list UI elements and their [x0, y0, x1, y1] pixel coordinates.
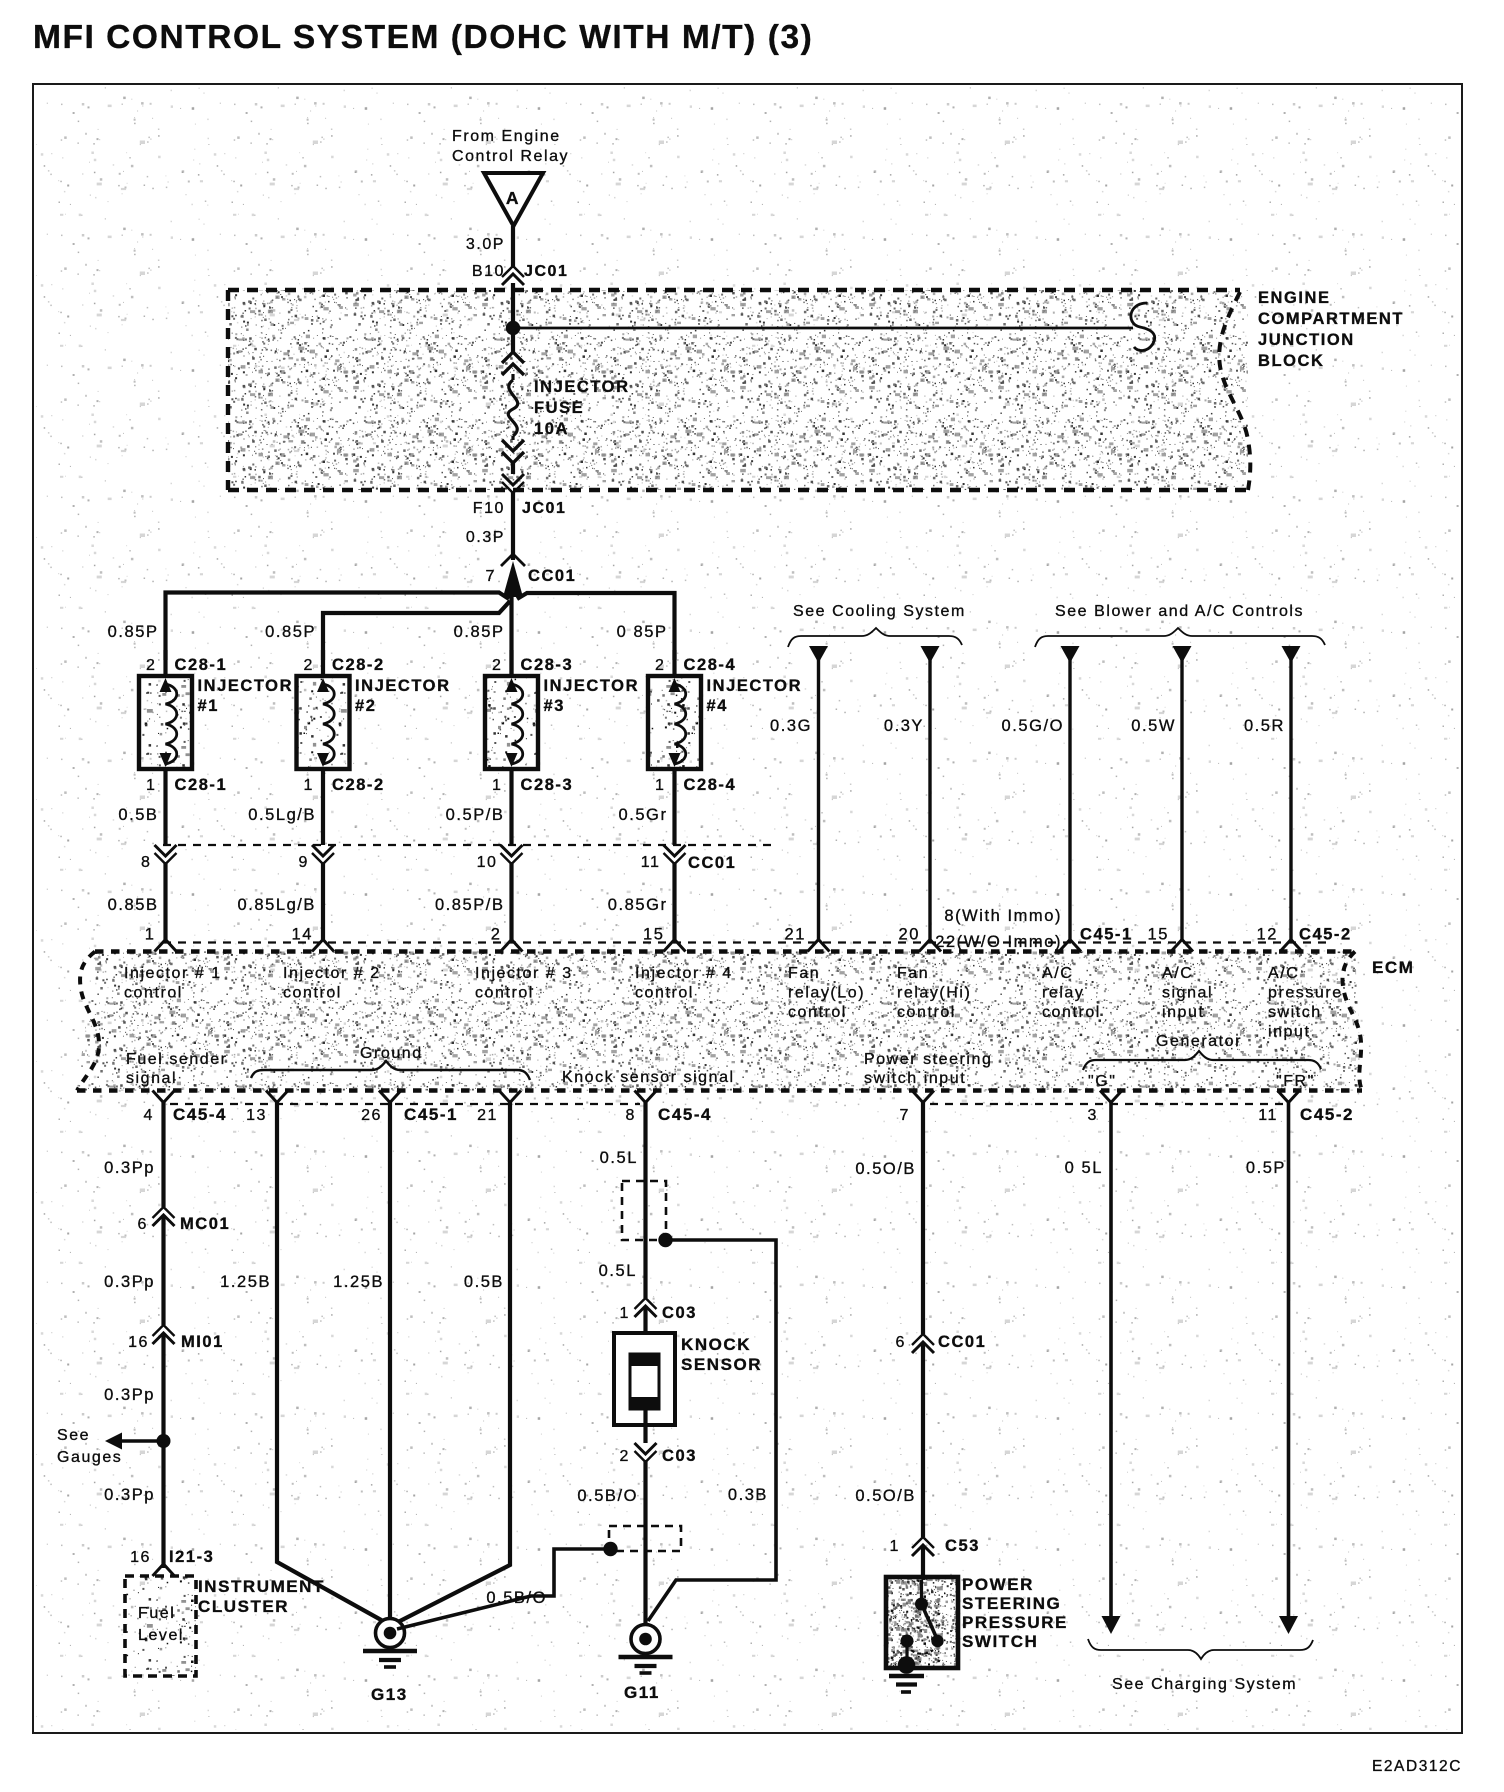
svg-text:0.85P/B: 0.85P/B — [435, 896, 505, 914]
svg-text:3.0P: 3.0P — [466, 236, 505, 253]
svg-text:1: 1 — [655, 777, 665, 794]
svg-text:CLUSTER: CLUSTER — [198, 1597, 289, 1616]
svg-text:16: 16 — [128, 1334, 149, 1351]
svg-text:2: 2 — [146, 657, 156, 674]
svg-text:C03: C03 — [662, 1304, 697, 1322]
svg-text:control: control — [897, 1004, 956, 1021]
svg-text:C28-1: C28-1 — [175, 776, 228, 794]
svg-text:0.5L: 0.5L — [600, 1149, 638, 1167]
svg-text:8(With Immo): 8(With Immo) — [944, 907, 1062, 925]
svg-text:Power steering: Power steering — [864, 1051, 992, 1068]
svg-text:See Cooling System: See Cooling System — [793, 603, 966, 620]
svg-text:C28-1: C28-1 — [175, 656, 228, 674]
svg-text:12: 12 — [1257, 926, 1278, 944]
svg-text:C45-1: C45-1 — [404, 1105, 458, 1124]
svg-text:C45-4: C45-4 — [173, 1105, 227, 1124]
svg-text:Generator: Generator — [1156, 1033, 1242, 1050]
svg-text:INJECTOR: INJECTOR — [198, 677, 294, 695]
svg-text:A/C: A/C — [1268, 965, 1299, 982]
svg-text:0.3Pp: 0.3Pp — [104, 1273, 155, 1291]
svg-text:C28-3: C28-3 — [521, 776, 574, 794]
svg-text:0.5L: 0.5L — [599, 1262, 637, 1280]
svg-text:1: 1 — [620, 1305, 630, 1322]
svg-text:From Engine: From Engine — [452, 128, 561, 145]
svg-text:switch: switch — [1268, 1004, 1322, 1021]
svg-text:C28-2: C28-2 — [332, 656, 385, 674]
svg-text:INJECTOR: INJECTOR — [534, 378, 630, 396]
svg-text:7: 7 — [486, 568, 496, 585]
svg-text:Injector # 2: Injector # 2 — [283, 965, 381, 982]
svg-text:ENGINE: ENGINE — [1258, 289, 1331, 307]
svg-text:signal: signal — [1162, 985, 1213, 1002]
svg-text:control: control — [124, 985, 183, 1002]
svg-text:0 85P: 0 85P — [617, 623, 668, 641]
svg-text:2: 2 — [655, 657, 665, 674]
svg-text:control: control — [1042, 1004, 1101, 1021]
svg-text:21: 21 — [477, 1107, 498, 1124]
svg-text:#3: #3 — [544, 697, 565, 715]
svg-text:input: input — [1268, 1024, 1310, 1041]
svg-text:Fuel sender: Fuel sender — [126, 1051, 228, 1068]
svg-text:Injector # 1: Injector # 1 — [124, 965, 222, 982]
svg-text:C03: C03 — [662, 1447, 697, 1465]
svg-text:INJECTOR: INJECTOR — [355, 677, 451, 695]
svg-text:I21-3: I21-3 — [169, 1548, 214, 1566]
svg-text:0.5P/B: 0.5P/B — [446, 806, 505, 824]
svg-text:F10: F10 — [473, 500, 505, 517]
svg-text:1: 1 — [146, 777, 156, 794]
svg-text:0.3Pp: 0.3Pp — [104, 1159, 155, 1177]
svg-text:1: 1 — [145, 926, 156, 944]
svg-text:pressure: pressure — [1268, 985, 1343, 1002]
svg-text:KNOCK: KNOCK — [681, 1335, 751, 1354]
svg-text:1: 1 — [304, 777, 314, 794]
svg-text:C45-2: C45-2 — [1300, 1105, 1354, 1124]
svg-text:See Charging System: See Charging System — [1112, 1676, 1297, 1693]
svg-text:C28-2: C28-2 — [332, 776, 385, 794]
svg-text:See Blower and A/C Controls: See Blower and A/C Controls — [1055, 603, 1304, 620]
svg-text:0.5B: 0.5B — [464, 1273, 504, 1291]
svg-text:0.5R: 0.5R — [1244, 717, 1285, 735]
svg-text:2: 2 — [304, 657, 314, 674]
svg-text:control: control — [475, 985, 534, 1002]
svg-text:switch input: switch input — [864, 1070, 966, 1087]
svg-text:BLOCK: BLOCK — [1258, 352, 1324, 370]
svg-text:Injector # 3: Injector # 3 — [475, 965, 573, 982]
svg-text:STEERING: STEERING — [962, 1594, 1061, 1613]
svg-text:control: control — [283, 985, 342, 1002]
svg-text:0.5O/B: 0.5O/B — [855, 1160, 916, 1178]
svg-text:JC01: JC01 — [524, 263, 568, 280]
svg-text:input: input — [1162, 1004, 1204, 1021]
svg-text:relay: relay — [1042, 985, 1084, 1002]
svg-text:POWER: POWER — [962, 1575, 1034, 1594]
svg-text:0.85P: 0.85P — [108, 623, 159, 641]
svg-text:C45-1: C45-1 — [1080, 926, 1133, 944]
svg-text:16: 16 — [130, 1549, 151, 1566]
svg-text:0.5B/O: 0.5B/O — [486, 1589, 547, 1607]
svg-text:control: control — [635, 985, 694, 1002]
svg-text:0.85Lg/B: 0.85Lg/B — [238, 896, 316, 914]
svg-text:0.5O/B: 0.5O/B — [855, 1487, 916, 1505]
svg-text:C28-4: C28-4 — [684, 776, 737, 794]
svg-text:JC01: JC01 — [522, 500, 566, 517]
svg-text:control: control — [788, 1004, 847, 1021]
svg-text:10A: 10A — [534, 420, 569, 438]
svg-text:15: 15 — [643, 926, 664, 944]
svg-text:0 5L: 0 5L — [1065, 1159, 1103, 1177]
svg-text:21: 21 — [785, 926, 806, 944]
svg-text:C45-2: C45-2 — [1299, 926, 1352, 944]
svg-text:CC01: CC01 — [938, 1333, 986, 1351]
svg-text:Fan: Fan — [788, 965, 820, 982]
svg-text:0.3G: 0.3G — [770, 717, 812, 735]
svg-text:B10: B10 — [472, 263, 505, 280]
svg-text:11: 11 — [1258, 1107, 1278, 1124]
svg-text:Injector # 4: Injector # 4 — [635, 965, 733, 982]
svg-text:#1: #1 — [198, 697, 219, 715]
svg-text:9: 9 — [299, 854, 309, 871]
svg-text:G11: G11 — [624, 1683, 660, 1702]
svg-text:Gauges: Gauges — [57, 1449, 122, 1466]
svg-text:11: 11 — [641, 854, 661, 871]
svg-text:3: 3 — [1088, 1107, 1098, 1124]
svg-text:0.85B: 0.85B — [108, 896, 159, 914]
svg-text:1.25B: 1.25B — [220, 1273, 271, 1291]
svg-text:7: 7 — [900, 1107, 910, 1124]
svg-text:SWITCH: SWITCH — [962, 1632, 1038, 1651]
svg-text:0.5B: 0.5B — [118, 806, 158, 824]
svg-text:6: 6 — [138, 1216, 148, 1233]
svg-text:13: 13 — [246, 1107, 267, 1124]
svg-text:Ground: Ground — [360, 1045, 423, 1062]
svg-text:22(W/O Immo): 22(W/O Immo) — [935, 933, 1062, 951]
svg-text:0.5Lg/B: 0.5Lg/B — [248, 806, 316, 824]
svg-text:10: 10 — [477, 854, 498, 871]
svg-text:0.5P: 0.5P — [1246, 1159, 1286, 1177]
svg-text:C45-4: C45-4 — [658, 1105, 712, 1124]
svg-text:#4: #4 — [707, 697, 728, 715]
svg-text:Fan: Fan — [897, 965, 929, 982]
svg-text:Fuel: Fuel — [138, 1605, 175, 1622]
svg-text:2: 2 — [492, 657, 502, 674]
svg-text:signal: signal — [126, 1070, 177, 1087]
svg-text:0.3Pp: 0.3Pp — [104, 1486, 155, 1504]
svg-text:0.3Pp: 0.3Pp — [104, 1386, 155, 1404]
svg-text:ECM: ECM — [1372, 958, 1414, 977]
svg-text:relay(Hi): relay(Hi) — [897, 985, 971, 1002]
svg-text:8: 8 — [626, 1107, 636, 1124]
svg-text:C28-4: C28-4 — [684, 656, 737, 674]
svg-text:MC01: MC01 — [180, 1215, 230, 1233]
svg-text:relay(Lo): relay(Lo) — [788, 985, 865, 1002]
svg-text:INJECTOR: INJECTOR — [707, 677, 803, 695]
svg-text:MFI CONTROL SYSTEM (DOHC W: MFI CONTROL SYSTEM (DOHC WITH M/T) (3) — [33, 19, 813, 56]
svg-text:0.5G/O: 0.5G/O — [1002, 717, 1065, 735]
svg-text:PRESSURE: PRESSURE — [962, 1613, 1068, 1632]
svg-text:1: 1 — [492, 777, 502, 794]
svg-text:SENSOR: SENSOR — [681, 1355, 762, 1374]
svg-text:0.3Y: 0.3Y — [884, 717, 924, 735]
svg-text:2: 2 — [491, 926, 502, 944]
svg-text:0.5Gr: 0.5Gr — [618, 806, 667, 824]
svg-text:Level: Level — [138, 1627, 184, 1644]
svg-text:Control Relay: Control Relay — [452, 148, 569, 165]
svg-text:JUNCTION: JUNCTION — [1258, 331, 1355, 349]
svg-text:6: 6 — [896, 1334, 906, 1351]
svg-text:1: 1 — [890, 1538, 900, 1555]
svg-text:#2: #2 — [355, 697, 376, 715]
svg-text:COMPARTMENT: COMPARTMENT — [1258, 310, 1404, 328]
svg-text:0.85P: 0.85P — [265, 623, 316, 641]
svg-text:0.5W: 0.5W — [1131, 717, 1176, 735]
svg-text:26: 26 — [361, 1107, 382, 1124]
svg-text:"FR": "FR" — [1276, 1073, 1315, 1090]
svg-text:1.25B: 1.25B — [333, 1273, 384, 1291]
svg-text:4: 4 — [144, 1107, 154, 1124]
svg-text:0.5B/O: 0.5B/O — [577, 1487, 638, 1505]
svg-text:15: 15 — [1148, 926, 1169, 944]
svg-text:A/C: A/C — [1162, 965, 1193, 982]
svg-text:MI01: MI01 — [181, 1333, 224, 1351]
svg-text:See: See — [57, 1427, 90, 1444]
svg-text:CC01: CC01 — [528, 567, 576, 585]
svg-text:FUSE: FUSE — [534, 399, 584, 417]
svg-text:G13: G13 — [371, 1685, 408, 1704]
svg-text:CC01: CC01 — [688, 854, 736, 872]
svg-text:0.3P: 0.3P — [466, 529, 505, 546]
svg-text:C53: C53 — [945, 1537, 980, 1555]
svg-text:14: 14 — [292, 926, 313, 944]
svg-text:INJECTOR: INJECTOR — [544, 677, 640, 695]
svg-text:A: A — [506, 188, 520, 208]
svg-text:20: 20 — [899, 926, 920, 944]
svg-text:0.3B: 0.3B — [728, 1486, 768, 1504]
svg-text:C28-3: C28-3 — [521, 656, 574, 674]
svg-text:Knock sensor signal: Knock sensor signal — [562, 1069, 735, 1086]
svg-text:8: 8 — [141, 854, 151, 871]
svg-text:"G": "G" — [1088, 1073, 1116, 1090]
svg-text:0.85P: 0.85P — [454, 623, 505, 641]
svg-text:2: 2 — [620, 1448, 630, 1465]
svg-text:0.85Gr: 0.85Gr — [608, 896, 668, 914]
svg-text:A/C: A/C — [1042, 965, 1073, 982]
svg-text:E2AD312C: E2AD312C — [1372, 1758, 1462, 1775]
